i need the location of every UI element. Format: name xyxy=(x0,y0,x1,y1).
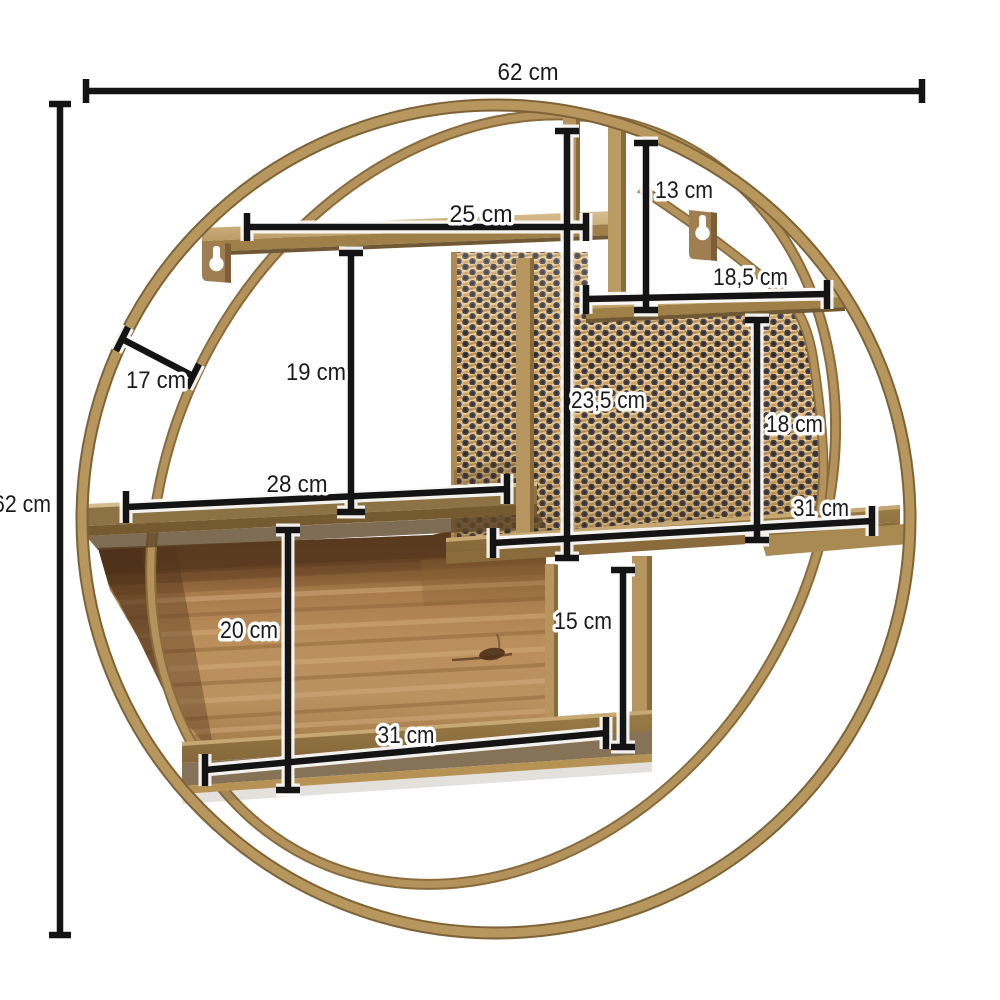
svg-text:62 cm: 62 cm xyxy=(0,491,51,518)
svg-text:13 cm: 13 cm xyxy=(655,177,713,204)
svg-text:31 cm: 31 cm xyxy=(378,722,435,749)
svg-text:20 cm: 20 cm xyxy=(220,617,278,644)
svg-text:17 cm: 17 cm xyxy=(126,367,186,394)
svg-text:62 cm: 62 cm xyxy=(498,59,559,86)
svg-text:25 cm: 25 cm xyxy=(450,201,513,228)
svg-text:19 cm: 19 cm xyxy=(286,359,346,386)
svg-text:28 cm: 28 cm xyxy=(267,471,328,498)
svg-text:15 cm: 15 cm xyxy=(554,608,612,635)
svg-text:31 cm: 31 cm xyxy=(793,495,849,522)
svg-text:23,5 cm: 23,5 cm xyxy=(571,387,645,414)
svg-text:18,5 cm: 18,5 cm xyxy=(713,264,788,291)
svg-text:18 cm: 18 cm xyxy=(766,411,823,438)
